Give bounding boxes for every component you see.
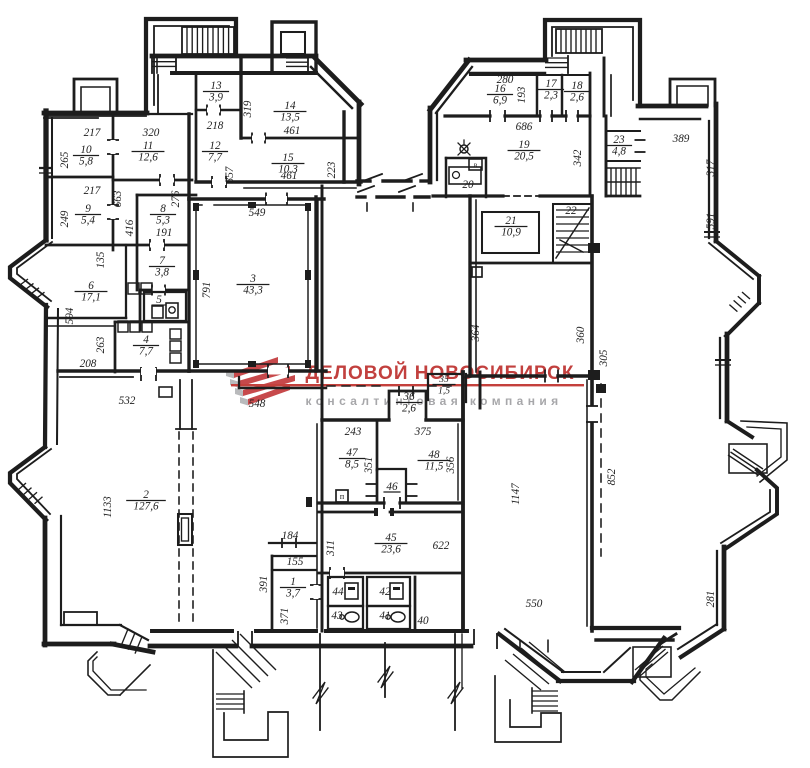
svg-text:5,3: 5,3 xyxy=(156,215,170,227)
svg-text:2: 2 xyxy=(143,489,149,501)
svg-text:35: 35 xyxy=(438,375,449,385)
svg-text:23: 23 xyxy=(613,134,625,146)
svg-text:317: 317 xyxy=(705,159,717,177)
svg-text:12,6: 12,6 xyxy=(138,152,158,164)
svg-text:351: 351 xyxy=(363,457,375,475)
svg-text:41: 41 xyxy=(379,610,390,622)
svg-text:2,3: 2,3 xyxy=(544,90,558,102)
svg-text:218: 218 xyxy=(207,120,224,132)
svg-text:3,8: 3,8 xyxy=(154,267,169,279)
svg-text:11,5: 11,5 xyxy=(425,461,444,473)
svg-text:21: 21 xyxy=(505,215,516,227)
svg-text:263: 263 xyxy=(95,336,107,353)
svg-text:4: 4 xyxy=(143,334,149,346)
svg-text:8: 8 xyxy=(160,203,166,215)
svg-text:155: 155 xyxy=(287,556,304,568)
svg-text:15: 15 xyxy=(282,152,294,164)
svg-text:19: 19 xyxy=(518,139,530,151)
svg-text:10,9: 10,9 xyxy=(501,227,521,239)
svg-text:223: 223 xyxy=(326,161,338,178)
svg-text:45: 45 xyxy=(385,532,397,544)
svg-text:7: 7 xyxy=(159,255,165,267)
svg-text:135: 135 xyxy=(95,251,107,268)
svg-text:184: 184 xyxy=(282,530,299,542)
svg-text:14: 14 xyxy=(284,100,296,112)
svg-text:217: 217 xyxy=(84,127,101,139)
svg-text:5,8: 5,8 xyxy=(79,156,93,168)
svg-text:243: 243 xyxy=(345,426,362,438)
svg-text:305: 305 xyxy=(598,349,610,367)
svg-text:3: 3 xyxy=(249,273,256,285)
svg-text:17: 17 xyxy=(545,78,557,90)
svg-text:13: 13 xyxy=(210,80,222,92)
svg-text:549: 549 xyxy=(249,207,266,219)
svg-text:10: 10 xyxy=(80,144,92,156)
svg-text:36: 36 xyxy=(402,391,415,403)
svg-text:1: 1 xyxy=(290,576,296,588)
svg-text:311: 311 xyxy=(325,540,337,557)
svg-text:5: 5 xyxy=(156,294,162,306)
svg-text:44: 44 xyxy=(332,586,344,598)
svg-text:47: 47 xyxy=(346,447,358,459)
svg-text:5,4: 5,4 xyxy=(81,215,95,227)
svg-text:4,8: 4,8 xyxy=(612,146,626,158)
svg-text:276: 276 xyxy=(170,190,182,207)
svg-text:193: 193 xyxy=(516,86,528,103)
svg-text:8,5: 8,5 xyxy=(345,459,359,471)
svg-text:1147: 1147 xyxy=(510,483,522,505)
svg-text:23,6: 23,6 xyxy=(381,544,401,556)
svg-text:1,5: 1,5 xyxy=(438,387,450,397)
svg-text:17,1: 17,1 xyxy=(81,292,101,304)
svg-text:3,7: 3,7 xyxy=(285,588,300,600)
svg-text:342: 342 xyxy=(572,149,584,167)
svg-text:127,6: 127,6 xyxy=(133,501,159,513)
svg-text:320: 320 xyxy=(142,127,160,139)
svg-text:22: 22 xyxy=(565,205,577,217)
svg-text:217: 217 xyxy=(84,185,101,197)
svg-text:18: 18 xyxy=(571,80,583,92)
svg-text:594: 594 xyxy=(64,307,76,324)
svg-text:532: 532 xyxy=(119,395,136,407)
svg-text:364: 364 xyxy=(470,324,482,342)
svg-text:591: 591 xyxy=(705,213,717,230)
svg-text:2,6: 2,6 xyxy=(402,403,416,415)
svg-text:42: 42 xyxy=(379,586,391,598)
svg-text:12: 12 xyxy=(209,140,221,152)
svg-text:208: 208 xyxy=(80,358,97,370)
svg-text:360: 360 xyxy=(575,326,587,344)
svg-text:6,9: 6,9 xyxy=(493,95,507,107)
svg-text:40: 40 xyxy=(417,615,429,627)
svg-text:13,5: 13,5 xyxy=(280,112,300,124)
svg-text:46: 46 xyxy=(386,481,398,493)
svg-text:389: 389 xyxy=(672,133,690,145)
svg-text:2,6: 2,6 xyxy=(570,92,584,104)
svg-text:371: 371 xyxy=(279,608,291,626)
svg-text:548: 548 xyxy=(249,398,266,410)
svg-text:43,3: 43,3 xyxy=(243,285,263,297)
svg-text:461: 461 xyxy=(284,125,301,137)
svg-text:550: 550 xyxy=(526,598,543,610)
svg-text:191: 191 xyxy=(156,227,173,239)
svg-text:1133: 1133 xyxy=(102,496,114,518)
svg-text:416: 416 xyxy=(124,219,136,236)
svg-text:9: 9 xyxy=(85,203,91,215)
svg-text:375: 375 xyxy=(414,426,432,438)
svg-text:319: 319 xyxy=(242,100,254,118)
svg-text:357: 357 xyxy=(224,166,236,184)
svg-text:281: 281 xyxy=(705,591,717,608)
svg-text:п: п xyxy=(340,492,345,501)
svg-text:11: 11 xyxy=(143,140,153,152)
svg-text:663: 663 xyxy=(112,190,124,207)
svg-text:356: 356 xyxy=(445,456,457,474)
svg-text:3,9: 3,9 xyxy=(208,92,223,104)
svg-text:391: 391 xyxy=(258,576,270,594)
svg-text:48: 48 xyxy=(428,449,440,461)
svg-text:20: 20 xyxy=(462,179,474,191)
svg-text:791: 791 xyxy=(201,282,213,299)
svg-text:686: 686 xyxy=(516,121,533,133)
svg-text:622: 622 xyxy=(433,540,450,552)
svg-text:20,5: 20,5 xyxy=(514,151,534,163)
svg-text:7,7: 7,7 xyxy=(208,152,222,164)
svg-text:249: 249 xyxy=(59,210,71,227)
svg-text:43: 43 xyxy=(331,610,343,622)
svg-text:461: 461 xyxy=(281,170,298,182)
svg-text:16: 16 xyxy=(494,83,506,95)
svg-text:852: 852 xyxy=(606,468,618,485)
svg-text:6: 6 xyxy=(88,280,94,292)
svg-text:265: 265 xyxy=(59,151,71,168)
svg-text:консалтинговая компания: консалтинговая компания xyxy=(305,394,562,408)
svg-text:7,7: 7,7 xyxy=(139,346,153,358)
